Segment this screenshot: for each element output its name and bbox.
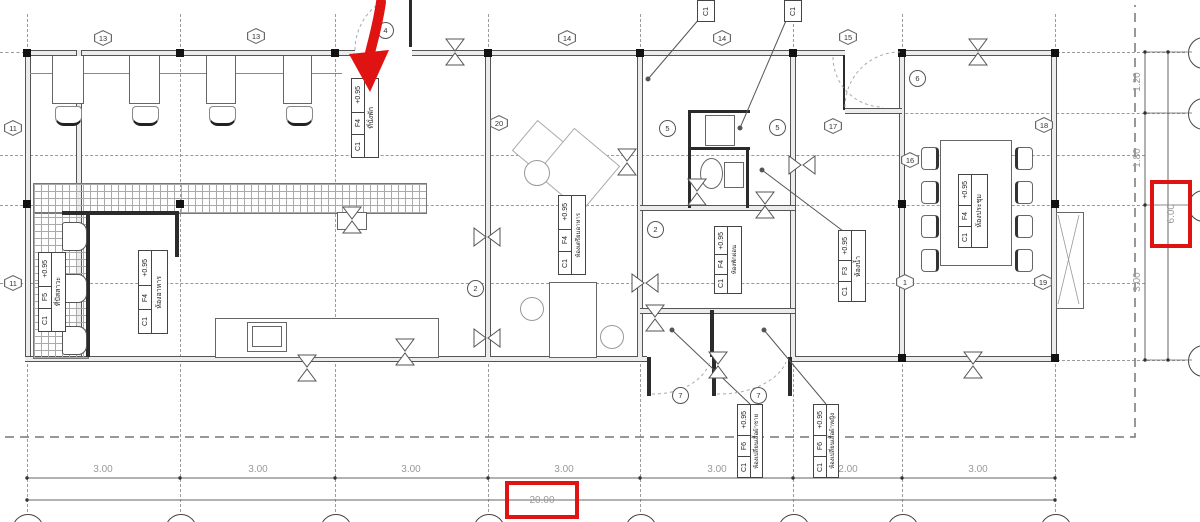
tag-level: +0.95: [718, 232, 725, 250]
tag-room-name: ห้องเปลี่ยนเสื้อผ้าชาย: [752, 414, 762, 469]
tag-column-code: C1: [817, 463, 824, 472]
chair-circle: [524, 160, 550, 186]
grid-bubble-cut: [1040, 514, 1072, 522]
column-marker: [1051, 49, 1059, 57]
dim-label: 1.20: [1132, 72, 1143, 91]
column-tag: C1: [784, 0, 802, 22]
tag-room-name: ห้องน้ำ: [853, 256, 864, 277]
chair-circle: [600, 325, 624, 349]
tag-floor-code: F4: [355, 119, 362, 127]
wall-stub: [409, 0, 412, 47]
seating-booth: [206, 56, 236, 104]
toilet-wall: [62, 211, 178, 215]
exterior-wall-top: [900, 50, 1057, 56]
floor-plan-canvas: +0.95 F4 C1 ที่นั่งพัก +0.95 F5 C1 ที่ปั…: [0, 0, 1200, 522]
tag-column-code: C1: [842, 287, 849, 296]
column-tag: C1: [697, 0, 715, 22]
column-marker: [789, 49, 797, 57]
tag-floor-code: F3: [842, 267, 849, 275]
dim-label: 1.80: [1132, 148, 1143, 167]
grid-bubble-circle: 7: [750, 387, 767, 404]
seating-booth: [52, 56, 84, 104]
tag-column-code: C1: [741, 463, 748, 472]
tag-level: +0.95: [355, 86, 362, 104]
shower-stall-fin: [710, 310, 714, 357]
grid-bubble-cut: [12, 514, 44, 522]
grid-bubble-circle: 2: [467, 280, 484, 297]
conference-chair: [921, 181, 939, 204]
red-highlight-box-total-height: 6.00: [1150, 180, 1192, 248]
grid-bubble-circle: 5: [769, 119, 786, 136]
grid-bubble-hex: 14: [558, 30, 576, 46]
toilet-wall: [746, 147, 749, 208]
column-marker: [1051, 354, 1059, 362]
dim-label: 3.00: [707, 464, 726, 475]
dimension-ticks: [25, 50, 1169, 501]
grid-bubble-hex: 1: [896, 274, 914, 290]
tag-column-code: C1: [962, 233, 969, 242]
interior-wall: [640, 308, 795, 314]
tile-hatch-counter: [33, 183, 427, 214]
column-marker: [898, 354, 906, 362]
grid-bubble-circle: 6: [909, 70, 926, 87]
tag-column-code: C1: [142, 317, 149, 326]
room-tag: +0.95 F4 C1 ห้องอาหาร: [138, 250, 168, 334]
column-marker: [898, 200, 906, 208]
booth-chair: [55, 106, 82, 126]
shower-stall-fin: [712, 357, 716, 396]
grid-bubble-cut: [320, 514, 352, 522]
booth-chair: [286, 106, 313, 126]
prep-table: [549, 282, 597, 358]
grid-bubble-hex: 11: [4, 120, 22, 136]
tag-room-name: ห้องเตรียมอาหาร: [574, 213, 584, 258]
window-panel: [1056, 212, 1084, 309]
dim-total-label: 6.00: [1166, 204, 1177, 223]
dim-total-label: 20.00: [529, 495, 554, 506]
grid-bubble-hex: 15: [839, 29, 857, 45]
toilet-bowl: [700, 158, 723, 189]
tag-room-name: ห้องเปลี่ยนเสื้อผ้าหญิง: [828, 413, 838, 469]
grid-bubble-hex: 16: [901, 152, 919, 168]
tag-room-name: ห้องอาหาร: [154, 276, 165, 309]
grid-bubble-hex: 13: [94, 30, 112, 46]
tag-level: +0.95: [962, 181, 969, 199]
red-highlight-box-total-width: 20.00: [505, 481, 579, 519]
column-marker: [331, 49, 339, 57]
tag-level: +0.95: [817, 411, 824, 429]
interior-wall: [845, 108, 902, 114]
grid-bubble-circle: 5: [659, 120, 676, 137]
conference-chair: [1015, 215, 1033, 238]
column-marker: [176, 200, 184, 208]
column-marker: [636, 49, 644, 57]
dim-label: 3.00: [1132, 272, 1143, 291]
grid-line-vertical: [180, 14, 181, 512]
grid-bubble-hex: 17: [824, 118, 842, 134]
tag-level: +0.95: [842, 237, 849, 255]
column-tag-label: C1: [703, 7, 710, 16]
tag-floor-code: F4: [962, 212, 969, 220]
exterior-wall-bottom: [790, 356, 1057, 362]
tag-level: +0.95: [42, 260, 49, 278]
conference-chair: [1015, 249, 1033, 272]
tag-room-name: ห้องประชุม: [974, 194, 985, 228]
interior-wall: [640, 205, 795, 211]
tag-floor-code: F4: [142, 294, 149, 302]
column-marker: [23, 49, 31, 57]
grid-bubble-cut: [1188, 98, 1200, 130]
toilet-wall: [688, 110, 750, 113]
room-tag: +0.95 F4 C1 ห้องประชุม: [958, 174, 988, 248]
grid-line-horizontal: [0, 52, 25, 53]
grid-bubble-hex: 20: [490, 115, 508, 131]
column-marker: [1051, 200, 1059, 208]
column-marker: [176, 49, 184, 57]
tag-floor-code: F6: [741, 442, 748, 450]
grid-bubble-cut: [1188, 37, 1200, 69]
grid-bubble-cut: [887, 514, 919, 522]
seating-booth: [283, 56, 312, 104]
grid-bubble-circle: 4: [377, 22, 394, 39]
toilet-tank: [724, 162, 744, 188]
dimension-chain-lines: [27, 52, 1192, 500]
dim-label: 2.00: [838, 464, 857, 475]
room-tag: +0.95 F3 C1 ห้องน้ำ: [838, 230, 866, 302]
toilet-wall: [688, 110, 691, 208]
tag-column-code: C1: [562, 259, 569, 268]
column-marker: [23, 200, 31, 208]
interior-wall: [485, 55, 491, 357]
grid-bubble-cut: [778, 514, 810, 522]
tag-column-code: C1: [718, 279, 725, 288]
dim-label: 3.00: [93, 464, 112, 475]
conference-chair: [921, 215, 939, 238]
conference-chair: [921, 147, 939, 170]
room-tag: +0.95 F4 C1 ห้องพักผ่อน: [714, 226, 742, 294]
room-tag: +0.95 F4 C1 ห้องเตรียมอาหาร: [558, 195, 586, 275]
toilet-wall: [175, 211, 179, 257]
tag-room-name: ห้องพักผ่อน: [730, 245, 740, 274]
tag-room-name: ที่ปัสสาวะ: [53, 277, 64, 306]
urinal-fixture: [62, 222, 87, 251]
grid-line-horizontal: [1057, 360, 1185, 361]
grid-line-vertical: [335, 14, 336, 512]
tag-floor-code: F4: [718, 260, 725, 268]
room-tag: +0.95 F6 C1 ห้องเปลี่ยนเสื้อผ้าหญิง: [813, 404, 839, 478]
sink-basin: [252, 326, 282, 347]
tag-level: +0.95: [741, 411, 748, 429]
grid-bubble-cut: [165, 514, 197, 522]
tag-column-code: C1: [42, 316, 49, 325]
column-marker: [898, 49, 906, 57]
grid-bubble-cut: [1188, 345, 1200, 377]
dim-label: 3.00: [554, 464, 573, 475]
tag-room-name: ที่นั่งพัก: [366, 107, 377, 129]
grid-line-horizontal: [1057, 52, 1185, 53]
wc-fixture: [705, 115, 735, 146]
tag-level: +0.95: [562, 203, 569, 221]
shower-stall-fin: [647, 357, 651, 396]
counter-box: [337, 212, 367, 230]
column-marker: [484, 49, 492, 57]
interior-wall: [843, 55, 845, 110]
grid-bubble-hex: 14: [713, 30, 731, 46]
dim-label: 3.00: [401, 464, 420, 475]
tag-floor-code: F4: [562, 236, 569, 244]
conference-chair: [1015, 181, 1033, 204]
dim-label: 3.00: [968, 464, 987, 475]
tag-floor-code: F6: [817, 442, 824, 450]
conference-chair: [921, 249, 939, 272]
toilet-wall: [688, 147, 750, 150]
room-tag: +0.95 F5 C1 ที่ปัสสาวะ: [38, 252, 66, 332]
grid-bubble-hex: 13: [247, 28, 265, 44]
tag-column-code: C1: [355, 142, 362, 151]
column-tag-label: C1: [790, 7, 797, 16]
chair-circle: [520, 297, 544, 321]
tag-level: +0.95: [142, 259, 149, 277]
room-tag: +0.95 F4 C1 ที่นั่งพัก: [351, 78, 379, 158]
booth-chair: [209, 106, 236, 126]
grid-bubble-hex: 11: [4, 275, 22, 291]
exterior-wall-top: [412, 50, 845, 56]
dim-label: 3.00: [248, 464, 267, 475]
shower-stall-fin: [788, 357, 792, 396]
seating-booth: [129, 56, 160, 104]
grid-bubble-hex: 19: [1034, 274, 1052, 290]
tag-floor-code: F5: [42, 293, 49, 301]
grid-bubble-cut: [625, 514, 657, 522]
grid-bubble-hex: 18: [1035, 117, 1053, 133]
grid-bubble-circle: 7: [672, 387, 689, 404]
grid-bubble-circle: 2: [647, 221, 664, 238]
room-tag: +0.95 F6 C1 ห้องเปลี่ยนเสื้อผ้าชาย: [737, 404, 763, 478]
conference-chair: [1015, 147, 1033, 170]
booth-chair: [132, 106, 159, 126]
grid-bubble-cut: [473, 514, 505, 522]
